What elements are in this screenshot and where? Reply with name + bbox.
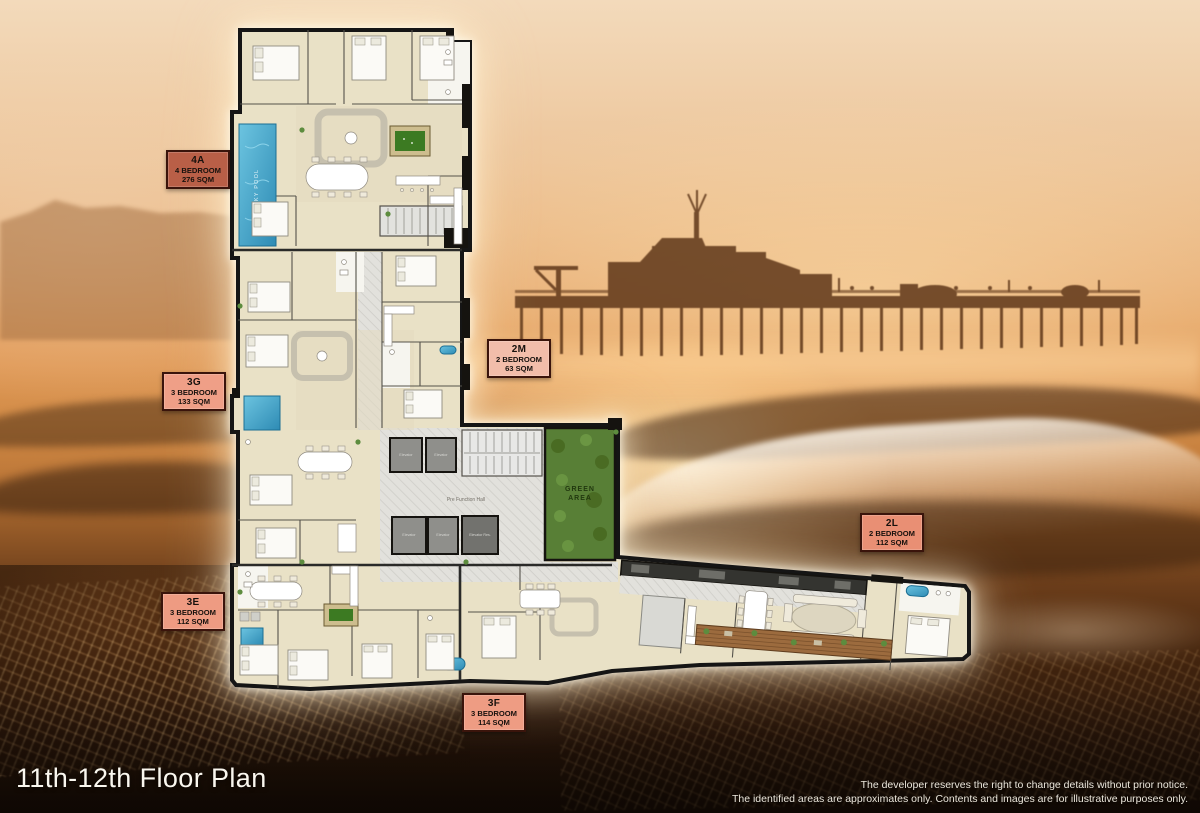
unit-label-2l: 2L 2 BEDROOM 112 SQM bbox=[860, 513, 924, 552]
plunge-pool bbox=[241, 628, 263, 645]
unit-label-4a: 4A 4 BEDROOM 276 SQM bbox=[166, 150, 230, 189]
unit-area: 133 SQM bbox=[166, 398, 222, 407]
elevator-label: Elevator bbox=[434, 453, 448, 457]
disclaimer-line-2: The identified areas are approximates on… bbox=[588, 792, 1188, 807]
unit-area: 112 SQM bbox=[864, 539, 920, 548]
unit-area: 114 SQM bbox=[466, 719, 522, 728]
elevator-label: Elevator bbox=[436, 533, 450, 537]
unit-label-3g: 3G 3 BEDROOM 133 SQM bbox=[162, 372, 226, 411]
disclaimer-line-1: The developer reserves the right to chan… bbox=[588, 778, 1188, 793]
unit-label-3f: 3F 3 BEDROOM 114 SQM bbox=[462, 693, 526, 732]
unit-area: 63 SQM bbox=[491, 365, 547, 374]
elevator-label: Elevator bbox=[402, 533, 416, 537]
pre-function-hall-label: Pre Function Hall bbox=[447, 497, 485, 503]
unit-area: 276 SQM bbox=[170, 176, 226, 185]
page-title: 11th-12th Floor Plan bbox=[16, 763, 267, 794]
green-area-label: AREA bbox=[568, 495, 592, 502]
unit-area: 112 SQM bbox=[165, 618, 221, 627]
green-area-label: GREEN bbox=[565, 486, 595, 493]
service-room bbox=[639, 595, 685, 648]
disclaimer: The developer reserves the right to chan… bbox=[588, 778, 1188, 807]
green-area: GREEN AREA bbox=[545, 428, 615, 560]
sky-pool-label: SKY POOL bbox=[254, 169, 260, 206]
unit-label-2m: 2M 2 BEDROOM 63 SQM bbox=[487, 339, 551, 378]
elevator-label: Elevator bbox=[399, 453, 413, 457]
plunge-pool bbox=[244, 396, 280, 430]
elevator-res-label: Elevator Res. bbox=[469, 533, 491, 537]
unit-label-3e: 3E 3 BEDROOM 112 SQM bbox=[161, 592, 225, 631]
floor-plan-poster: .bd{fill:#fbfaf6;stroke:#8f8a80;stroke-w… bbox=[0, 0, 1200, 813]
